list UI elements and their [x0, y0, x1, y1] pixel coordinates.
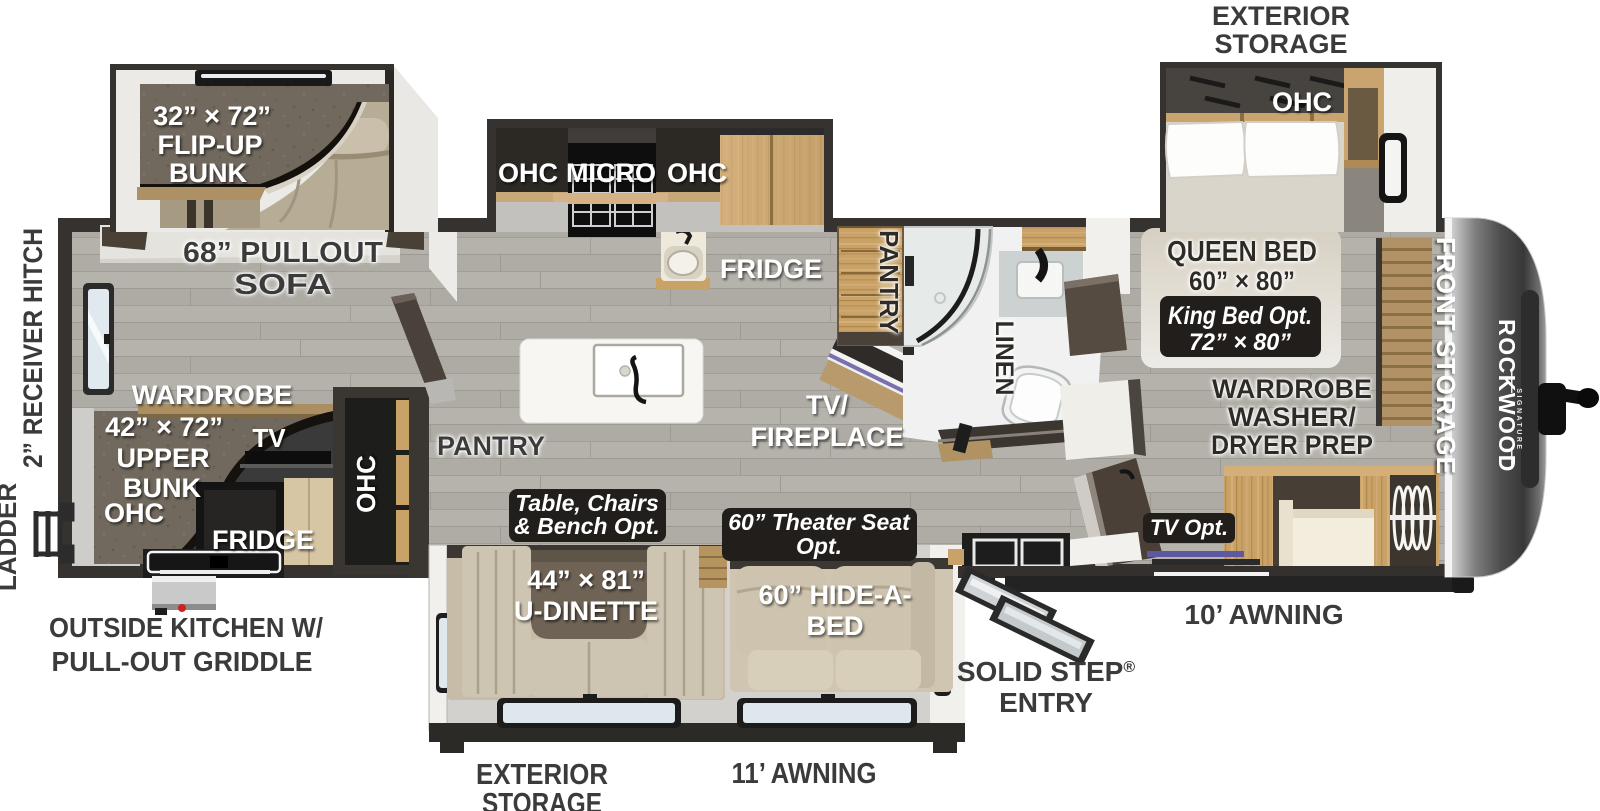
svg-text:LINEN: LINEN [990, 321, 1018, 396]
svg-text:ENTRY: ENTRY [999, 687, 1093, 718]
svg-text:TV Opt.: TV Opt. [1150, 515, 1228, 540]
svg-text:FRONT STORAGE: FRONT STORAGE [1431, 237, 1461, 475]
svg-text:WARDROBE: WARDROBE [1212, 374, 1372, 404]
svg-text:FIREPLACE: FIREPLACE [750, 422, 903, 452]
svg-text:WARDROBE: WARDROBE [132, 380, 293, 410]
svg-text:TV: TV [252, 423, 286, 453]
svg-text:OUTSIDE KITCHEN W/: OUTSIDE KITCHEN W/ [49, 612, 323, 643]
svg-text:SIGNATURE: SIGNATURE [1515, 388, 1522, 451]
svg-text:PANTRY: PANTRY [874, 230, 904, 334]
svg-text:68” PULLOUT: 68” PULLOUT [183, 237, 383, 269]
svg-text:BED: BED [806, 611, 863, 641]
svg-text:OHC: OHC [351, 455, 381, 513]
svg-text:SOLID STEP®: SOLID STEP® [957, 656, 1135, 687]
svg-text:QUEEN BED: QUEEN BED [1167, 236, 1317, 268]
svg-text:72” × 80”: 72” × 80” [1189, 329, 1291, 356]
svg-text:UPPER: UPPER [116, 443, 209, 473]
svg-text:OHC: OHC [104, 498, 164, 528]
svg-text:LADDER: LADDER [0, 483, 22, 592]
svg-text:BUNK: BUNK [169, 158, 247, 188]
svg-text:SOFA: SOFA [234, 269, 332, 301]
svg-text:DRYER PREP: DRYER PREP [1211, 430, 1373, 460]
svg-text:& Bench Opt.: & Bench Opt. [514, 513, 660, 539]
svg-text:OHC: OHC [1272, 87, 1332, 117]
svg-text:U-DINETTE: U-DINETTE [514, 596, 658, 626]
svg-text:EXTERIOR: EXTERIOR [476, 759, 608, 791]
svg-text:FRIDGE: FRIDGE [720, 254, 822, 284]
svg-text:OHC: OHC [667, 158, 727, 188]
svg-text:STORAGE: STORAGE [482, 788, 602, 811]
svg-text:60” Theater Seat: 60” Theater Seat [728, 509, 911, 535]
svg-text:42” × 72”: 42” × 72” [105, 412, 223, 442]
svg-text:2” RECEIVER HITCH: 2” RECEIVER HITCH [18, 228, 48, 468]
svg-text:10’ AWNING: 10’ AWNING [1184, 599, 1343, 630]
svg-text:60” × 80”: 60” × 80” [1189, 266, 1295, 296]
svg-text:OHC: OHC [498, 158, 558, 188]
svg-text:60” HIDE-A-: 60” HIDE-A- [758, 580, 911, 610]
svg-text:PANTRY: PANTRY [437, 431, 545, 461]
svg-text:FRIDGE: FRIDGE [212, 525, 314, 555]
svg-text:Opt.: Opt. [796, 533, 842, 559]
svg-text:FLIP-UP: FLIP-UP [158, 130, 263, 160]
svg-text:32” × 72”: 32” × 72” [153, 101, 271, 131]
svg-text:EXTERIOR: EXTERIOR [1212, 1, 1350, 31]
svg-text:STORAGE: STORAGE [1214, 29, 1347, 59]
svg-text:PULL-OUT GRIDDLE: PULL-OUT GRIDDLE [52, 646, 313, 677]
svg-text:11’ AWNING: 11’ AWNING [732, 758, 877, 790]
svg-text:44” × 81”: 44” × 81” [527, 565, 645, 595]
svg-text:King Bed Opt.: King Bed Opt. [1168, 302, 1312, 330]
svg-text:WASHER/: WASHER/ [1228, 402, 1356, 432]
svg-text:TV/: TV/ [806, 390, 849, 420]
svg-text:MICRO: MICRO [566, 158, 656, 188]
